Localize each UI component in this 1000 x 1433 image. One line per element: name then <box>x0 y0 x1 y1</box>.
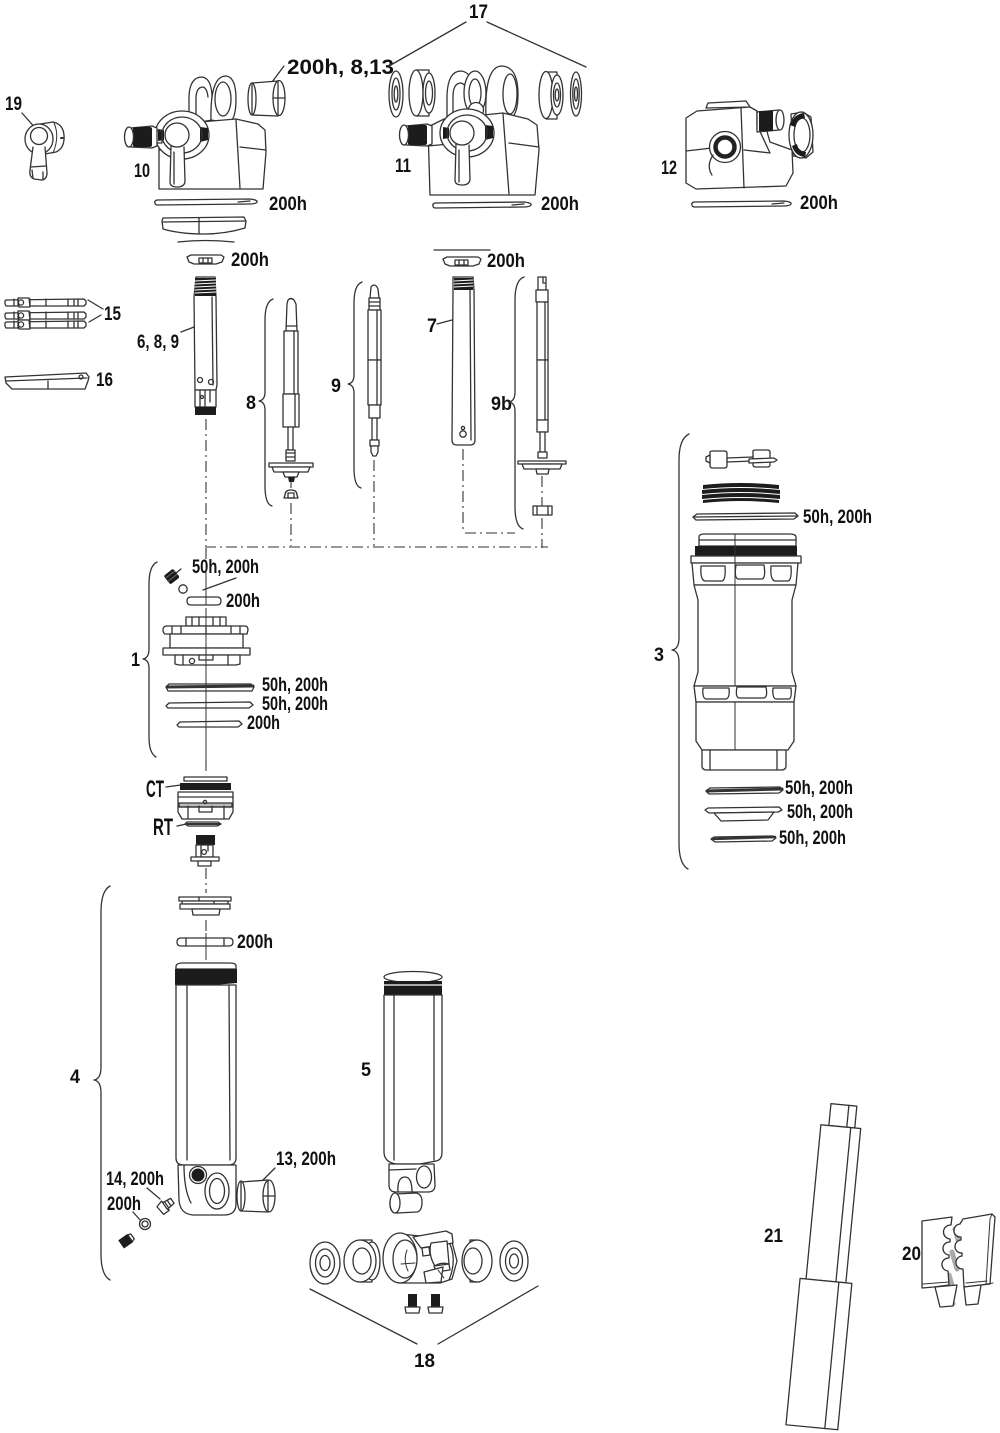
svg-text:200h: 200h <box>800 193 838 214</box>
svg-text:9: 9 <box>331 376 341 397</box>
svg-text:200h: 200h <box>269 194 307 215</box>
svg-text:5: 5 <box>361 1060 371 1081</box>
svg-text:16: 16 <box>96 370 113 391</box>
svg-text:19: 19 <box>5 94 22 115</box>
svg-text:200h: 200h <box>226 591 260 612</box>
svg-text:200h: 200h <box>541 194 579 215</box>
svg-text:200h: 200h <box>247 713 280 734</box>
svg-text:50h, 200h: 50h, 200h <box>262 694 328 715</box>
svg-text:7: 7 <box>427 316 437 337</box>
svg-text:8: 8 <box>246 393 256 414</box>
svg-text:CT: CT <box>146 776 164 803</box>
svg-text:10: 10 <box>134 161 150 182</box>
svg-text:21: 21 <box>764 1226 783 1247</box>
svg-text:4: 4 <box>70 1067 80 1088</box>
svg-text:3: 3 <box>654 645 664 666</box>
svg-text:20: 20 <box>902 1244 921 1265</box>
svg-text:14, 200h: 14, 200h <box>106 1169 164 1190</box>
svg-text:12: 12 <box>661 158 677 179</box>
svg-text:200h, 8,13: 200h, 8,13 <box>287 56 394 79</box>
svg-text:17: 17 <box>469 2 488 23</box>
svg-text:50h, 200h: 50h, 200h <box>785 778 853 799</box>
svg-text:13, 200h: 13, 200h <box>276 1149 336 1170</box>
svg-text:18: 18 <box>414 1351 435 1372</box>
svg-text:200h: 200h <box>107 1194 141 1215</box>
svg-text:6, 8, 9: 6, 8, 9 <box>137 332 179 353</box>
svg-text:50h, 200h: 50h, 200h <box>779 828 846 849</box>
svg-text:200h: 200h <box>231 250 269 271</box>
svg-text:200h: 200h <box>487 251 525 272</box>
svg-text:1: 1 <box>131 650 140 671</box>
svg-text:9b: 9b <box>491 394 512 415</box>
svg-text:11: 11 <box>395 156 411 177</box>
svg-text:200h: 200h <box>237 932 273 953</box>
svg-text:15: 15 <box>104 304 121 325</box>
svg-text:50h, 200h: 50h, 200h <box>192 557 259 578</box>
svg-text:50h, 200h: 50h, 200h <box>262 675 328 696</box>
svg-text:50h, 200h: 50h, 200h <box>787 802 853 823</box>
svg-text:50h, 200h: 50h, 200h <box>803 507 872 528</box>
svg-text:RT: RT <box>153 814 173 841</box>
